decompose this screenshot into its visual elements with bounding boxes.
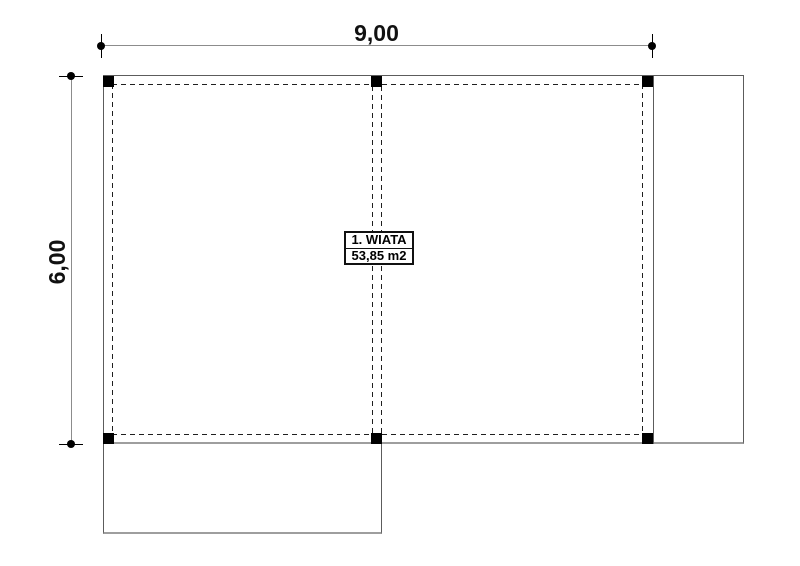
column-marker-bottom-middle: [371, 433, 382, 444]
room-name: 1. WIATA: [346, 233, 412, 249]
floor-plan-canvas: 9,00 6,00 1. WIATA 53,85 m2: [0, 0, 800, 566]
right-annex-divider-wall: [653, 75, 654, 444]
column-marker-top-middle: [371, 76, 382, 87]
roof-dashed-right: [642, 84, 643, 434]
dimension-endpoint-dot: [67, 72, 75, 80]
structure-outline: [103, 75, 744, 444]
roof-dashed-left: [112, 84, 113, 434]
dimension-width-label: 9,00: [101, 21, 652, 45]
dimension-endpoint-dot: [97, 42, 105, 50]
column-marker-bottom-left: [103, 433, 114, 444]
dimension-endpoint-dot: [648, 42, 656, 50]
room-label-box: 1. WIATA 53,85 m2: [344, 231, 414, 265]
column-marker-top-right: [642, 76, 653, 87]
dimension-line-horizontal: [101, 45, 652, 46]
dimension-height-label: 6,00: [45, 240, 69, 285]
column-marker-top-left: [103, 76, 114, 87]
column-marker-bottom-right: [642, 433, 653, 444]
dimension-endpoint-dot: [67, 440, 75, 448]
dimension-line-vertical: [71, 76, 72, 444]
room-area: 53,85 m2: [346, 249, 412, 264]
bottom-annex-outline: [103, 444, 382, 534]
